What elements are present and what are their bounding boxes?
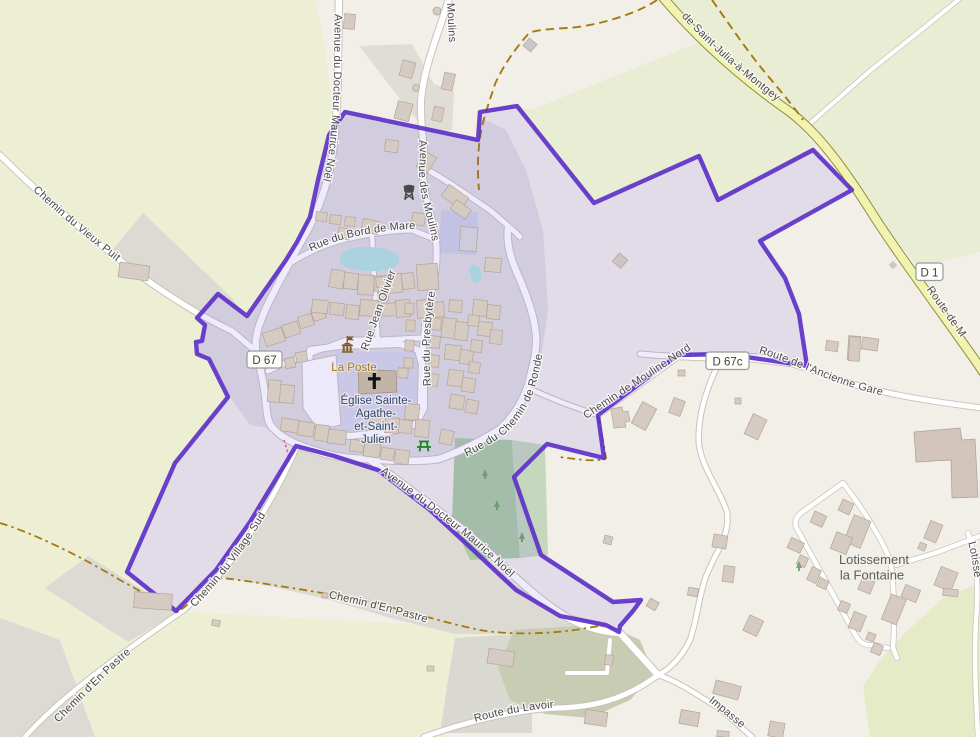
svg-text:Lotissement: Lotissement: [839, 552, 909, 567]
svg-text:D 67: D 67: [252, 355, 276, 367]
svg-text:D 67c: D 67c: [712, 357, 742, 369]
svg-text:La Poste: La Poste: [331, 362, 376, 374]
svg-text:Agathe-: Agathe-: [356, 408, 396, 420]
svg-text:Julien: Julien: [361, 434, 391, 446]
svg-text:et-Saint-: et-Saint-: [354, 421, 398, 433]
svg-text:la Fontaine: la Fontaine: [840, 568, 904, 583]
svg-text:Église Sainte-: Église Sainte-: [341, 394, 412, 407]
svg-text:D 1: D 1: [921, 268, 939, 280]
